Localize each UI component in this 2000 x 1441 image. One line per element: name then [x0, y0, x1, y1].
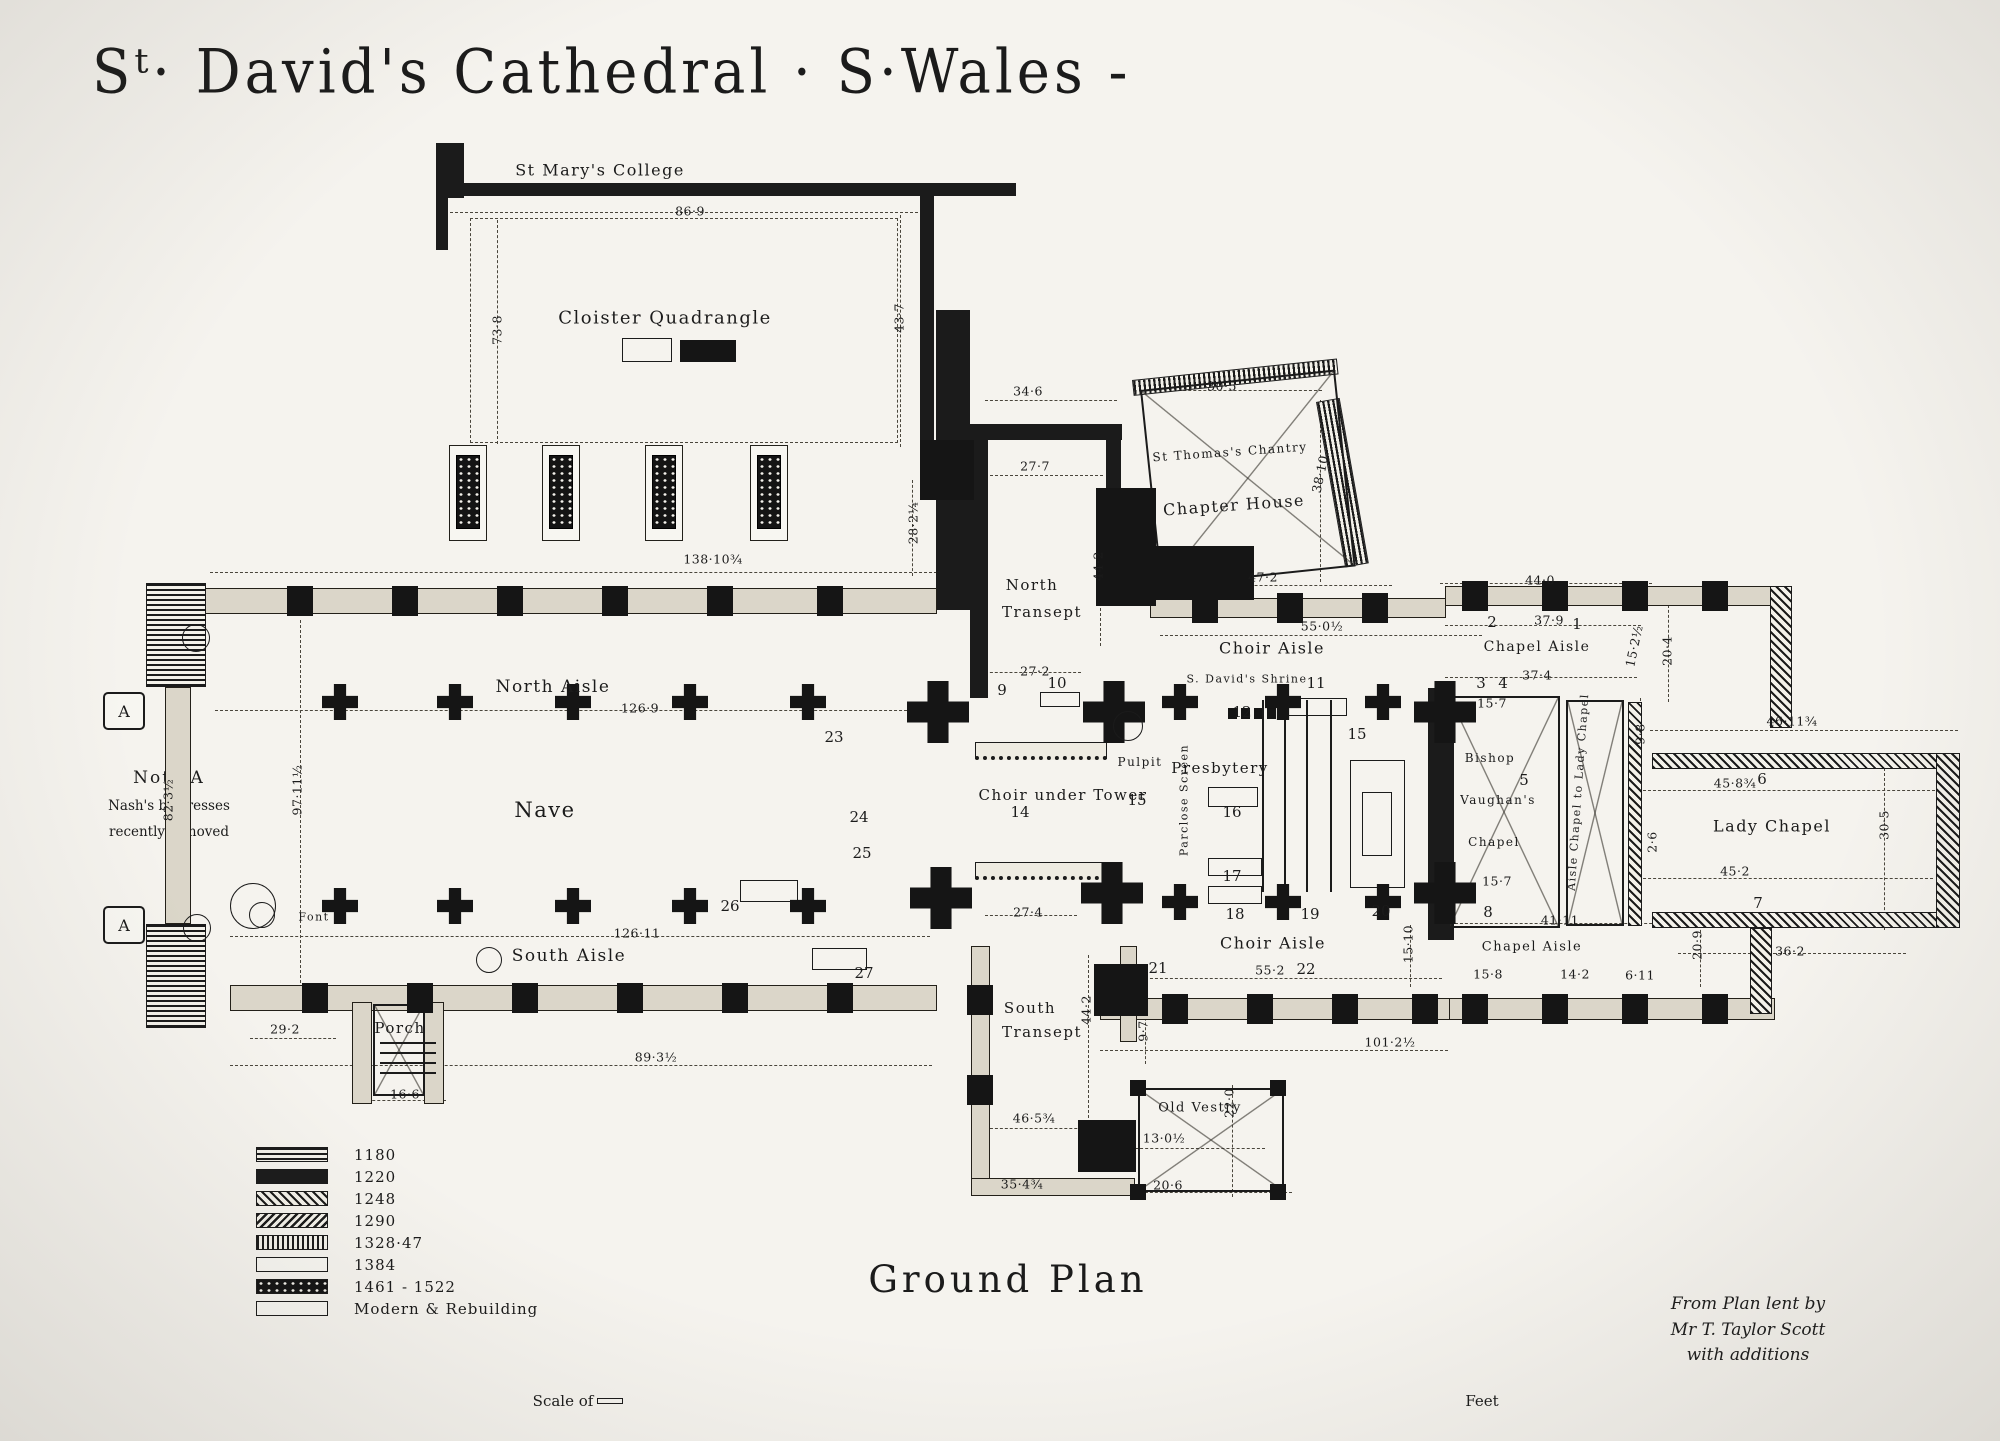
- wall: [970, 424, 1122, 440]
- ref-number: 17: [1222, 867, 1241, 885]
- marker-a: A: [103, 692, 145, 730]
- attribution-line2: Mr T. Taylor Scott: [1598, 1318, 1898, 1344]
- dimension-label: 29·2: [270, 1022, 300, 1037]
- room-label: South Aisle: [512, 946, 626, 966]
- legend-swatch-hatchV: [256, 1235, 328, 1250]
- legend-label: 1328·47: [354, 1234, 423, 1252]
- wall-pier: [1247, 994, 1273, 1024]
- dimension-label: 82·3½: [161, 779, 176, 821]
- dimension-label: 41·11: [1541, 913, 1579, 928]
- dimension-label: 46·11¾: [1767, 714, 1818, 729]
- stair-circle-glyph: [1113, 711, 1143, 741]
- wall: [1750, 928, 1772, 1014]
- legend-row: 1220: [256, 1168, 538, 1185]
- room-label: Choir Aisle: [1220, 934, 1326, 953]
- legend-row: 1328·47: [256, 1234, 538, 1251]
- dash-line-h: [1160, 635, 1482, 636]
- feature-outline: [740, 880, 798, 902]
- room-label: Cloister Quadrangle: [558, 308, 772, 329]
- arcade-pier: [1265, 884, 1301, 920]
- dimension-label: 9·8: [1633, 723, 1648, 744]
- scale-suffix: Feet: [1465, 1392, 1498, 1410]
- thin-line: [1330, 700, 1332, 892]
- arcade-pier: [322, 684, 358, 720]
- arcade-pier: [1162, 884, 1198, 920]
- thin-line: [380, 1062, 436, 1064]
- wall-mass: [1126, 546, 1254, 600]
- ref-number: 2: [1487, 613, 1497, 631]
- arcade-pier: [672, 888, 708, 924]
- wall: [757, 455, 781, 529]
- dimension-label: 47·2: [1248, 570, 1278, 585]
- ref-number: 27: [854, 964, 873, 982]
- dimension-label: 27·7: [1020, 459, 1050, 474]
- ref-number: 7: [1753, 894, 1763, 912]
- ref-number: 22: [1296, 960, 1315, 978]
- ref-number: 15: [1127, 791, 1146, 809]
- dimension-label: 126·11: [614, 926, 661, 941]
- legend-label: 1384: [354, 1256, 396, 1274]
- thin-line: [380, 1072, 436, 1074]
- legend-swatch-ring: [256, 1257, 328, 1272]
- wall-mass: [1130, 1184, 1146, 1200]
- ref-number: 11: [1306, 674, 1325, 692]
- ref-number: 23: [824, 728, 843, 746]
- legend-row: 1248: [256, 1190, 538, 1207]
- dimension-label: 86·9: [675, 204, 705, 219]
- ref-number: 25: [852, 844, 871, 862]
- dimension-label: 35·4¾: [1001, 1177, 1043, 1192]
- ref-number: 26: [720, 897, 739, 915]
- wall-pier: [967, 985, 993, 1015]
- room-label: Choir under Tower: [979, 786, 1148, 804]
- wall-pier: [1462, 994, 1488, 1024]
- wall: [975, 742, 1107, 760]
- dimension-label: 15·7: [1477, 696, 1507, 711]
- wall: [971, 946, 990, 1194]
- dimension-label: 46·5¾: [1013, 1111, 1055, 1126]
- ref-number: 3: [1476, 674, 1486, 692]
- room-label: St Mary's College: [515, 161, 685, 180]
- dimension-label: 138·10¾: [683, 552, 742, 567]
- ref-number: 10: [1047, 674, 1066, 692]
- dash-line-v: [1088, 955, 1089, 1133]
- wall: [436, 183, 1016, 196]
- wall-pier: [707, 586, 733, 616]
- wall-pier: [1622, 994, 1648, 1024]
- wall-pier: [497, 586, 523, 616]
- dimension-label: 27·4: [1013, 905, 1043, 920]
- dimension-label: 20·9: [1690, 930, 1705, 960]
- wall: [1770, 586, 1792, 728]
- dash-line-h: [210, 572, 937, 573]
- feature-outline: [1362, 792, 1392, 856]
- room-label: Chapel Aisle: [1482, 940, 1582, 955]
- wall-pier: [1412, 994, 1438, 1024]
- dimension-label: 15·2½: [1622, 624, 1645, 669]
- dash-line-h: [230, 1065, 932, 1066]
- wall-pier: [302, 983, 328, 1013]
- wall: [1652, 753, 1954, 769]
- wall: [1936, 753, 1960, 928]
- dash-line-h: [230, 936, 930, 937]
- ref-number: 15: [1347, 725, 1366, 743]
- room-label: Transept: [1002, 1023, 1082, 1041]
- attribution-line1: From Plan lent by: [1598, 1292, 1898, 1318]
- wall-pier: [1542, 994, 1568, 1024]
- dimension-label: 44·2: [1079, 995, 1094, 1025]
- room-label: S. David's Shrine: [1187, 673, 1308, 686]
- feature-outline: [622, 338, 672, 362]
- crossing-pier: [907, 681, 969, 743]
- legend-row: 1180: [256, 1146, 538, 1163]
- wall: [456, 455, 480, 529]
- dimension-label: 15·8: [1473, 967, 1503, 982]
- dimension-label: 45·2: [1720, 864, 1750, 879]
- ref-number: 8: [1483, 903, 1493, 921]
- ref-number: 19: [1300, 905, 1319, 923]
- arcade-pier: [1162, 684, 1198, 720]
- dimension-label: 43·7: [892, 303, 907, 333]
- arcade-pier: [672, 684, 708, 720]
- room-label: Pulpit: [1118, 755, 1163, 769]
- dimension-label: 6·11: [1625, 968, 1655, 983]
- ref-number: 14: [1010, 803, 1029, 821]
- legend-row: 1384: [256, 1256, 538, 1273]
- dimension-label: 30·5: [1207, 379, 1237, 394]
- dimension-label: 30·5: [1877, 810, 1892, 840]
- wall-pier: [407, 983, 433, 1013]
- dimension-label: 73·8: [490, 315, 505, 345]
- wall-mass: [1270, 1080, 1286, 1096]
- wall-pier: [602, 586, 628, 616]
- wall-mass: [680, 340, 736, 362]
- scale-segment: [597, 1398, 623, 1404]
- wall: [1652, 912, 1956, 928]
- wall: [549, 455, 573, 529]
- dimension-label: 44·2: [1091, 551, 1106, 581]
- dash-line-h: [250, 1038, 336, 1039]
- ref-number: 6: [1757, 770, 1767, 788]
- ref-number: 24: [849, 808, 868, 826]
- room-label: Bishop: [1465, 751, 1515, 765]
- dimension-label: 37·4: [1522, 668, 1552, 683]
- room-label: Nave: [514, 798, 575, 822]
- stair-circle-glyph: [249, 902, 275, 928]
- marker-a: A: [103, 906, 145, 944]
- scale-prefix: Scale of: [533, 1392, 594, 1410]
- room-label: Porch: [374, 1019, 425, 1037]
- legend-label: Modern & Rebuilding: [354, 1300, 538, 1318]
- arcade-pier: [437, 684, 473, 720]
- wall: [1100, 998, 1450, 1020]
- wall-mass: [920, 440, 974, 500]
- feature-outline: [1040, 692, 1080, 707]
- dimension-label: 22·0: [1222, 1088, 1237, 1118]
- arcade-pier: [437, 888, 473, 924]
- wall: [436, 196, 448, 250]
- dimension-label: 89·3½: [635, 1050, 677, 1065]
- wall-pier: [287, 586, 313, 616]
- dash-line-h: [1638, 790, 1935, 791]
- ref-number: 16: [1222, 803, 1241, 821]
- wall-pier: [827, 983, 853, 1013]
- dimension-label: 34·6: [1013, 384, 1043, 399]
- wall-pier: [1702, 581, 1728, 611]
- dash-line-h: [985, 475, 1103, 476]
- wall-pier: [1362, 593, 1388, 623]
- room-label: Parclose Screen: [1178, 744, 1191, 856]
- thin-line: [1262, 700, 1264, 892]
- dash-line-v: [1884, 768, 1885, 930]
- legend-label: 1248: [354, 1190, 396, 1208]
- attribution-line3: with additions: [1598, 1343, 1898, 1369]
- legend-swatch-solid: [256, 1169, 328, 1184]
- legend-row: Modern & Rebuilding: [256, 1300, 538, 1317]
- room-label: North Aisle: [496, 677, 611, 697]
- legend-label: 1461 - 1522: [354, 1278, 456, 1296]
- wall-mass: [1078, 1120, 1136, 1172]
- legend-row: 1461 - 1522: [256, 1278, 538, 1295]
- dimension-label: 101·2½: [1365, 1035, 1416, 1050]
- ref-number: 9: [997, 681, 1007, 699]
- wall-pier: [1192, 593, 1218, 623]
- dimension-label: 28·2¼: [906, 502, 921, 544]
- wall: [975, 862, 1107, 880]
- room-label: Vaughan's: [1460, 793, 1536, 807]
- wall-pier: [392, 586, 418, 616]
- plan-title: Ground Plan: [858, 1258, 1158, 1301]
- wall-pier: [817, 586, 843, 616]
- ref-number: 18: [1225, 905, 1244, 923]
- dimension-label: 15·7: [1482, 874, 1512, 889]
- wall-mass: [1094, 964, 1148, 1016]
- wall: [971, 1178, 1135, 1196]
- dimension-label: 15·10: [1401, 925, 1416, 963]
- legend-swatch-hatchD2: [256, 1213, 328, 1228]
- arcade-pier: [790, 684, 826, 720]
- attribution: From Plan lent by Mr T. Taylor Scott wit…: [1598, 1292, 1898, 1369]
- wall-mass: [1130, 1080, 1146, 1096]
- ref-number: 4: [1498, 674, 1508, 692]
- arcade-pier: [1365, 684, 1401, 720]
- wall-pier: [722, 983, 748, 1013]
- wall: [652, 455, 676, 529]
- wall-pier: [512, 983, 538, 1013]
- dimension-label: 45·8¾: [1714, 776, 1756, 791]
- room-label: South: [1004, 999, 1056, 1017]
- ref-number: 20: [1371, 902, 1390, 920]
- legend-label: 1290: [354, 1212, 396, 1230]
- cloister-garth-outline: [470, 218, 898, 443]
- room-label: Lady Chapel: [1713, 817, 1831, 836]
- dash-line-h: [985, 400, 1117, 401]
- thin-line: [380, 1052, 436, 1054]
- crossing-pier: [910, 867, 972, 929]
- wall-pier: [1622, 581, 1648, 611]
- wall-mass: [1267, 708, 1276, 719]
- room-label: Font: [298, 911, 329, 924]
- dimension-label: 55·0½: [1301, 619, 1343, 634]
- ref-number: 5: [1519, 771, 1529, 789]
- dimension-label: 126·9: [621, 701, 659, 716]
- wall: [352, 1002, 372, 1104]
- legend-row: 1290: [256, 1212, 538, 1229]
- stair-circle-glyph: [476, 947, 502, 973]
- wall-pier: [1162, 994, 1188, 1024]
- dimension-label: 2·6: [1645, 831, 1660, 852]
- room-label: Choir Aisle: [1219, 639, 1325, 658]
- room-label: Chapel: [1468, 835, 1520, 849]
- wall-pier: [1332, 994, 1358, 1024]
- dimension-label: 27·2: [1020, 664, 1050, 679]
- legend-swatch-plain: [256, 1301, 328, 1316]
- wall-pier: [1277, 593, 1303, 623]
- dimension-label: 14·2: [1560, 967, 1590, 982]
- drawing-sheet: Sᵗ· David's Cathedral · S·Wales - Note A…: [0, 0, 2000, 1441]
- room-label: Transept: [1002, 603, 1082, 621]
- dimension-label: 37·9: [1534, 613, 1564, 628]
- room-label: Chapel Aisle: [1484, 639, 1591, 655]
- dimension-label: 44·0: [1525, 573, 1555, 588]
- wall-pier: [1702, 994, 1728, 1024]
- dimension-label: 20·6: [1153, 1178, 1183, 1193]
- dimension-label: 20·4: [1660, 636, 1675, 666]
- legend-label: 1180: [354, 1146, 396, 1164]
- dimension-label: 55·2: [1255, 963, 1285, 978]
- ref-number: 21: [1148, 959, 1167, 977]
- room-label: North: [1006, 576, 1059, 594]
- dash-line-h: [1100, 1050, 1448, 1051]
- thin-line: [1284, 700, 1286, 892]
- feature-outline: [1208, 886, 1262, 904]
- dash-line-h: [1650, 730, 1958, 731]
- legend-label: 1220: [354, 1168, 396, 1186]
- dimension-label: 16·6: [390, 1087, 420, 1102]
- dimension-label: 13·0½: [1143, 1131, 1185, 1146]
- dimension-label: 9·7: [1136, 1020, 1151, 1041]
- dash-line-h: [1638, 878, 1933, 879]
- wall-pier: [967, 1075, 993, 1105]
- dimension-label: 97·11½: [290, 765, 305, 816]
- dimension-label: 36·2: [1775, 944, 1805, 959]
- vaulted-room: [373, 1004, 425, 1096]
- ref-number: 12: [1232, 703, 1251, 721]
- arcade-pier: [555, 888, 591, 924]
- wall-pier: [617, 983, 643, 1013]
- stair-circle-glyph: [183, 914, 211, 942]
- dash-line-h: [1140, 978, 1442, 979]
- wall-pier: [1462, 581, 1488, 611]
- ref-number: 1: [1572, 615, 1582, 633]
- wall-mass: [1270, 1184, 1286, 1200]
- legend-swatch-hatchD1: [256, 1191, 328, 1206]
- thin-line: [1306, 700, 1308, 892]
- legend-swatch-hatchH: [256, 1147, 328, 1162]
- stair-circle-glyph: [182, 624, 210, 652]
- thin-line: [380, 1042, 436, 1044]
- legend: 11801220124812901328·4713841461 - 1522Mo…: [256, 1146, 538, 1322]
- legend-swatch-dots: [256, 1279, 328, 1294]
